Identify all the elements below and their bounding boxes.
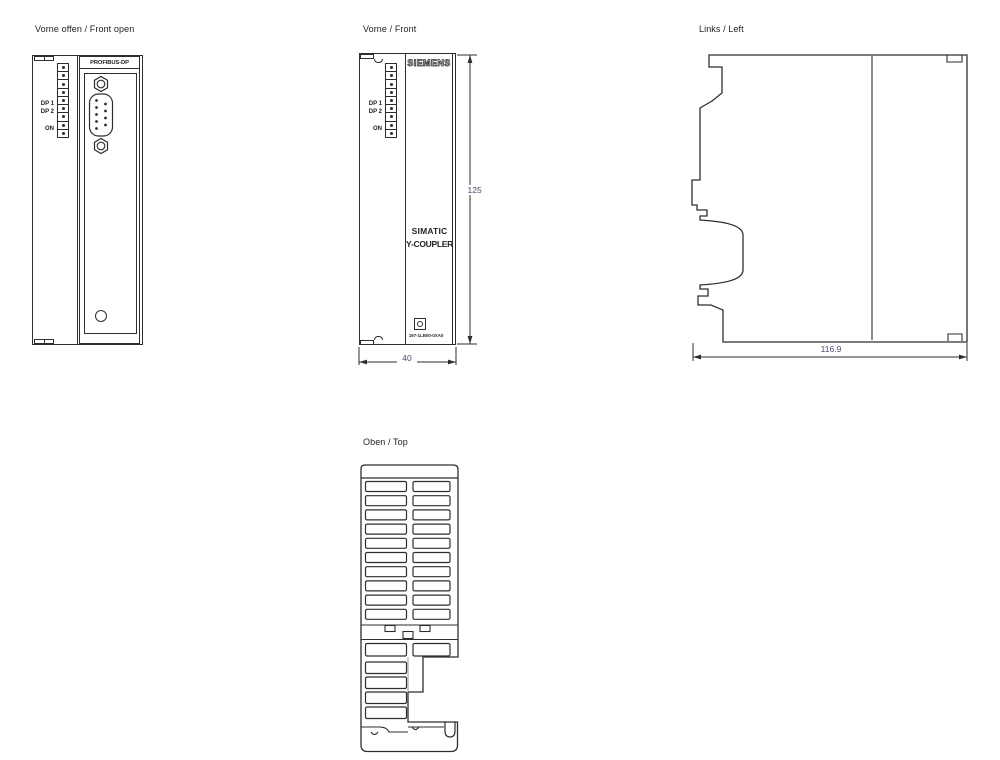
vent-slot [366,538,407,548]
led-icon [390,74,393,77]
vent-slot [413,496,450,506]
mount-tab-top [360,54,374,59]
vent-slot [413,595,450,605]
dsub-connector-icon [86,74,116,156]
led-icon [62,91,65,94]
latch-tab [385,626,395,632]
led-window [58,112,68,120]
base-detail-line [361,727,408,732]
dimension-height-value: 125 [467,185,483,195]
vent-slot [366,567,407,577]
led-window [386,121,396,129]
indicator-window [414,318,426,330]
led-window [58,104,68,112]
latch-tab-center [403,632,413,639]
vent-slot [413,609,450,619]
vent-slot [366,581,407,591]
led-icon [62,83,65,86]
vent-slot [366,707,407,719]
led-icon [62,66,65,69]
led-label-dp2: DP 2 [358,109,382,116]
vent-slot [366,496,407,506]
dsub-body [90,94,113,136]
vent-slot [366,644,407,657]
vent-slot [366,524,407,534]
dimension-height [456,50,480,350]
led-icon [390,124,393,127]
left-view-title: Links / Left [699,24,744,34]
front-open-panel-divider [77,55,78,345]
led-label-dp1: DP 1 [358,101,382,108]
led-icon [62,99,65,102]
drawing-canvas: Vorne offen / Front open DP 1 DP 2 ON PR… [0,0,1000,760]
front-module-outline [359,53,456,345]
led-icon [390,115,393,118]
vent-slot [413,567,450,577]
vent-slot [366,510,407,520]
led-window [58,71,68,79]
profibus-label: PROFIBUS-DP [90,60,129,66]
brand-logo: SIEMENS [406,58,452,68]
rail-notch-top [374,59,383,64]
product-name-line1: SIMATIC [406,226,453,236]
led-window [58,88,68,96]
vent-slot [366,553,407,563]
order-number: 197-1LB00-0XA0 [401,333,451,338]
rail-notch-bottom [374,336,383,341]
led-icon [62,115,65,118]
left-side-profile [690,44,978,344]
front-open-view-title: Vorne offen / Front open [35,24,134,34]
vent-slot [366,609,407,619]
vent-slots [366,482,451,620]
dimension-width-value: 40 [397,353,417,363]
vent-slot [366,595,407,605]
mount-tab-bottom [34,339,54,344]
led-icon [62,124,65,127]
led-window [386,129,396,137]
rail-hook [445,722,455,737]
vent-slot [413,553,450,563]
led-icon [62,132,65,135]
led-icon [390,66,393,69]
led-icon [390,91,393,94]
led-label-on: ON [30,126,54,133]
mount-tab-bottom [360,340,374,345]
base-bump [371,732,378,735]
led-window [386,79,396,87]
top-view-title: Oben / Top [363,437,408,447]
screw-hex-bottom-icon [95,139,108,154]
vent-slot [413,482,450,492]
clip-notch-top [947,55,962,62]
vent-slot [413,644,450,657]
led-label-dp1: DP 1 [30,101,54,108]
vent-slot [366,662,407,674]
mount-tab-top [34,56,54,61]
led-window [386,104,396,112]
led-window [58,129,68,137]
latch-tab [420,626,430,632]
led-icon [390,99,393,102]
vent-slot [366,692,407,704]
front-face-divider [405,53,406,345]
led-window [58,121,68,129]
led-icon [390,107,393,110]
vent-slot [366,677,407,689]
front-side-edge [452,53,453,345]
clip-notch-bottom [948,334,962,341]
profibus-band: PROFIBUS-DP [80,57,139,69]
led-window [58,96,68,104]
vent-slot [413,538,450,548]
vent-slot [413,510,450,520]
led-window [386,64,396,71]
housing-outline-path [361,465,458,752]
led-label-dp2: DP 2 [30,109,54,116]
led-window [386,112,396,120]
housing-profile-path [692,55,967,342]
led-window [386,71,396,79]
led-label-on: ON [358,126,382,133]
led-icon [62,107,65,110]
vent-slot [366,482,407,492]
led-window [386,96,396,104]
front-view-title: Vorne / Front [363,24,416,34]
top-view-outline [352,460,462,758]
vent-slot [413,524,450,534]
led-strip [385,63,397,138]
indicator-led-icon [417,321,423,327]
fixing-screw-icon [95,310,107,322]
led-window [386,88,396,96]
led-icon [390,132,393,135]
led-window [58,64,68,71]
led-window [58,79,68,87]
led-icon [390,83,393,86]
led-icon [62,74,65,77]
screw-hex-top-icon [95,77,108,92]
dimension-depth-value: 116.9 [812,344,850,354]
led-strip [57,63,69,138]
vent-slot [413,581,450,591]
product-name-line2: Y-COUPLER [406,239,453,249]
